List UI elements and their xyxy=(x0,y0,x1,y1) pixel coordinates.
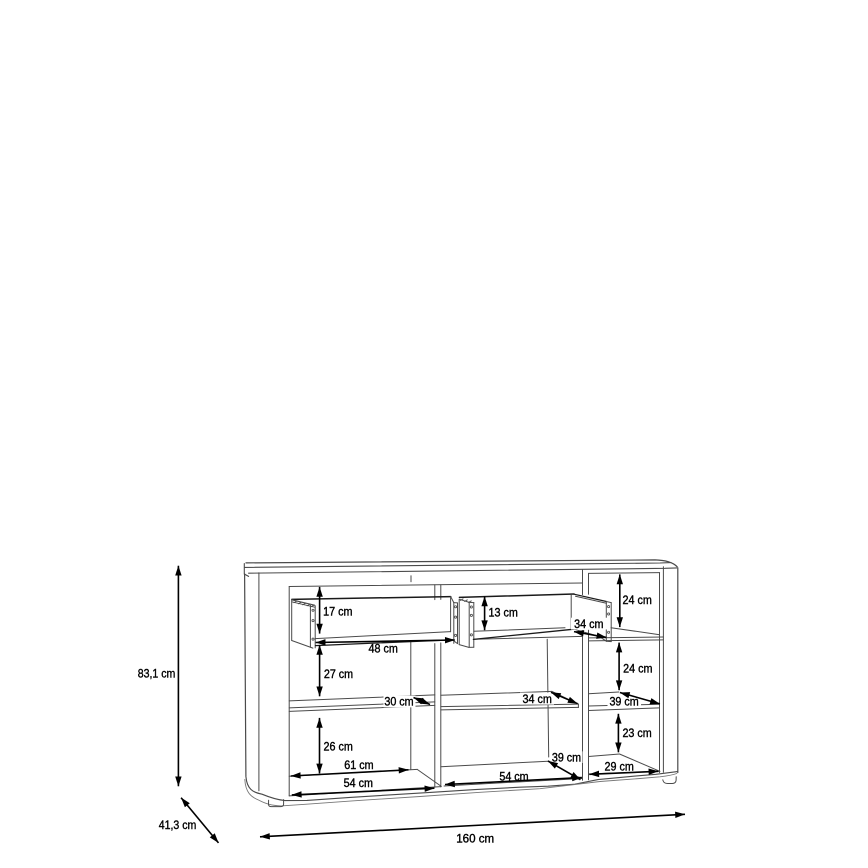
svg-text:39 cm: 39 cm xyxy=(552,750,581,764)
svg-text:54 cm: 54 cm xyxy=(344,776,373,790)
svg-text:41,3 cm: 41,3 cm xyxy=(159,818,197,832)
svg-text:24 cm: 24 cm xyxy=(623,593,652,607)
svg-text:39 cm: 39 cm xyxy=(609,695,638,709)
svg-text:17 cm: 17 cm xyxy=(323,604,352,618)
svg-text:24 cm: 24 cm xyxy=(623,662,652,676)
svg-text:27 cm: 27 cm xyxy=(324,667,353,681)
svg-text:23 cm: 23 cm xyxy=(622,726,651,740)
svg-text:34 cm: 34 cm xyxy=(523,692,552,706)
svg-text:83,1 cm: 83,1 cm xyxy=(138,666,176,680)
svg-text:48 cm: 48 cm xyxy=(369,641,398,655)
svg-text:54 cm: 54 cm xyxy=(499,770,528,784)
svg-text:29 cm: 29 cm xyxy=(605,760,634,774)
svg-text:160 cm: 160 cm xyxy=(456,832,494,846)
svg-text:61 cm: 61 cm xyxy=(344,758,373,772)
svg-text:30 cm: 30 cm xyxy=(384,695,413,709)
svg-text:13 cm: 13 cm xyxy=(489,605,518,619)
svg-text:26 cm: 26 cm xyxy=(324,740,353,754)
svg-text:34 cm: 34 cm xyxy=(574,617,603,631)
